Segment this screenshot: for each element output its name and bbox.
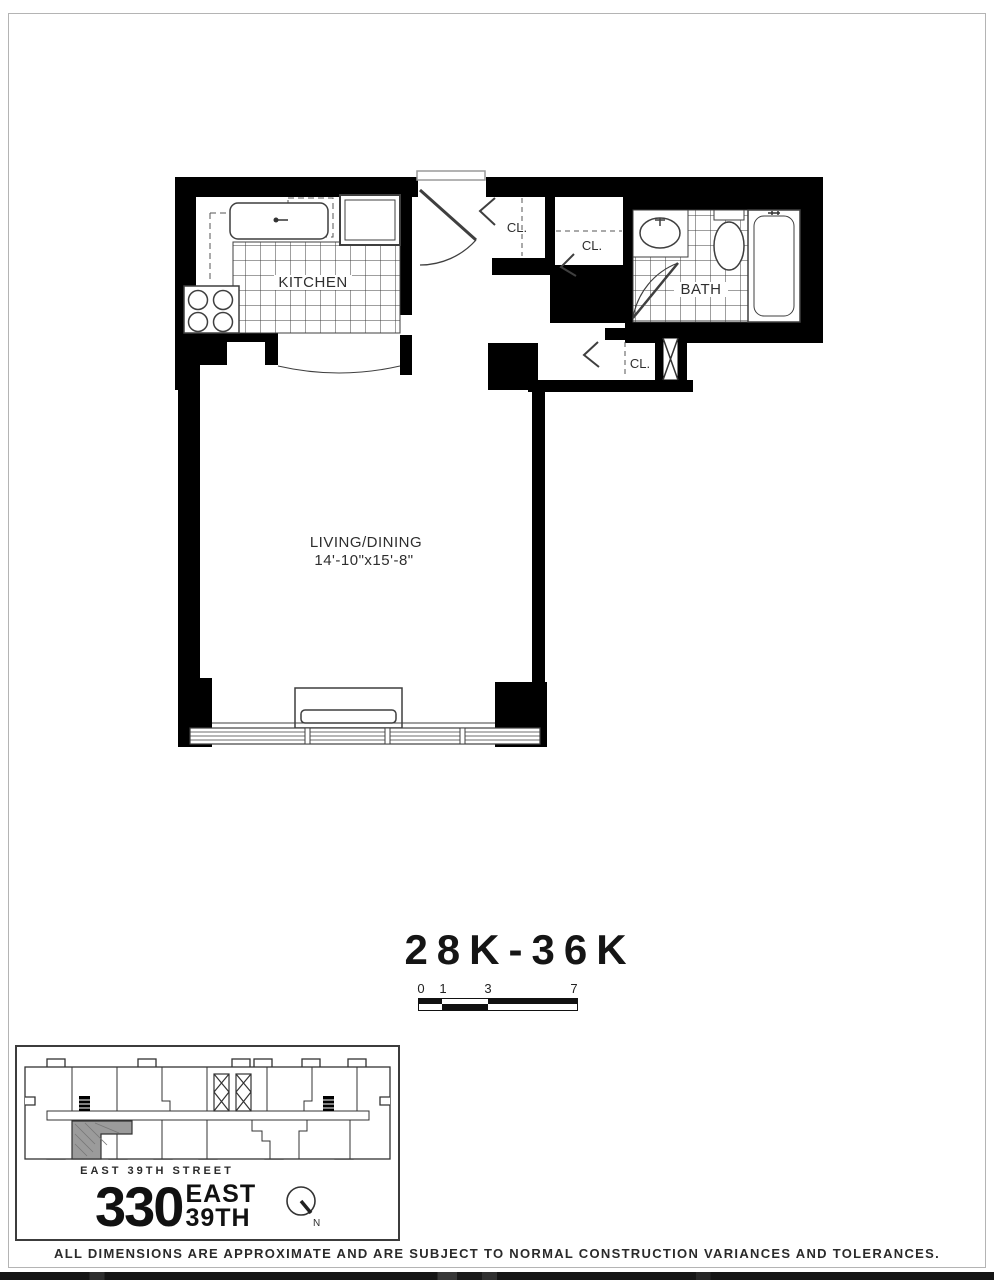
living-area: LIVING/DINING 14'-10"x15'-8": [190, 534, 540, 744]
scale-tick: 0: [417, 981, 424, 996]
toilet-icon: [714, 210, 744, 270]
stove-icon: [184, 286, 239, 333]
building-logo: 330 EAST 39TH N: [95, 1179, 322, 1235]
kitchen-sink-icon: [230, 203, 328, 239]
svg-text:N: N: [313, 1218, 320, 1229]
logo-number: 330: [95, 1179, 182, 1235]
scale-bar: 0 1 3 7: [418, 981, 588, 1013]
logo-word-39th: 39TH: [185, 1207, 256, 1231]
living-dimensions: 14'-10"x15'-8": [314, 552, 413, 569]
unit-title: 28K-36K: [310, 926, 730, 974]
closet-door-mark: [480, 198, 495, 225]
ac-unit-icon: [295, 688, 402, 728]
scale-tick: 1: [439, 981, 446, 996]
floor-plan: KITCHEN CL. CL. BATH: [170, 170, 830, 770]
refrigerator-icon: [340, 195, 400, 245]
key-plan-box: EAST 39TH STREET 330 EAST 39TH N: [15, 1045, 400, 1241]
kitchen-label: KITCHEN: [278, 274, 347, 291]
floorplan-page: { "unit": { "label": "28K-36K" }, "floor…: [0, 0, 994, 1280]
closet3-label: CL.: [630, 356, 650, 371]
north-arrow-icon: N: [282, 1184, 322, 1230]
scale-tick: 7: [570, 981, 577, 996]
bathtub-icon: [748, 210, 800, 322]
closet-door-mark: [584, 342, 599, 367]
wall-notch: [227, 342, 265, 365]
closet-lower: CL.: [584, 342, 650, 378]
pipe-shaft-icon: [663, 338, 678, 380]
kitchen-passthrough-arc: [278, 366, 400, 373]
closet2-label: CL.: [582, 238, 602, 253]
bath-area: BATH: [633, 210, 800, 322]
building-footprint: [17, 1049, 398, 1169]
disclaimer-text: ALL DIMENSIONS ARE APPROXIMATE AND ARE S…: [10, 1246, 984, 1261]
closet-entry: CL.: [480, 198, 527, 256]
bath-sink-icon: [633, 210, 688, 257]
closet1-label: CL.: [507, 220, 527, 235]
entry-door-icon: [417, 171, 485, 265]
scale-bar-graphic: [418, 998, 578, 1011]
bottom-cropped-strip: [0, 1272, 994, 1280]
scale-tick: 3: [484, 981, 491, 996]
living-label: LIVING/DINING: [310, 534, 422, 551]
bath-label: BATH: [681, 281, 722, 298]
